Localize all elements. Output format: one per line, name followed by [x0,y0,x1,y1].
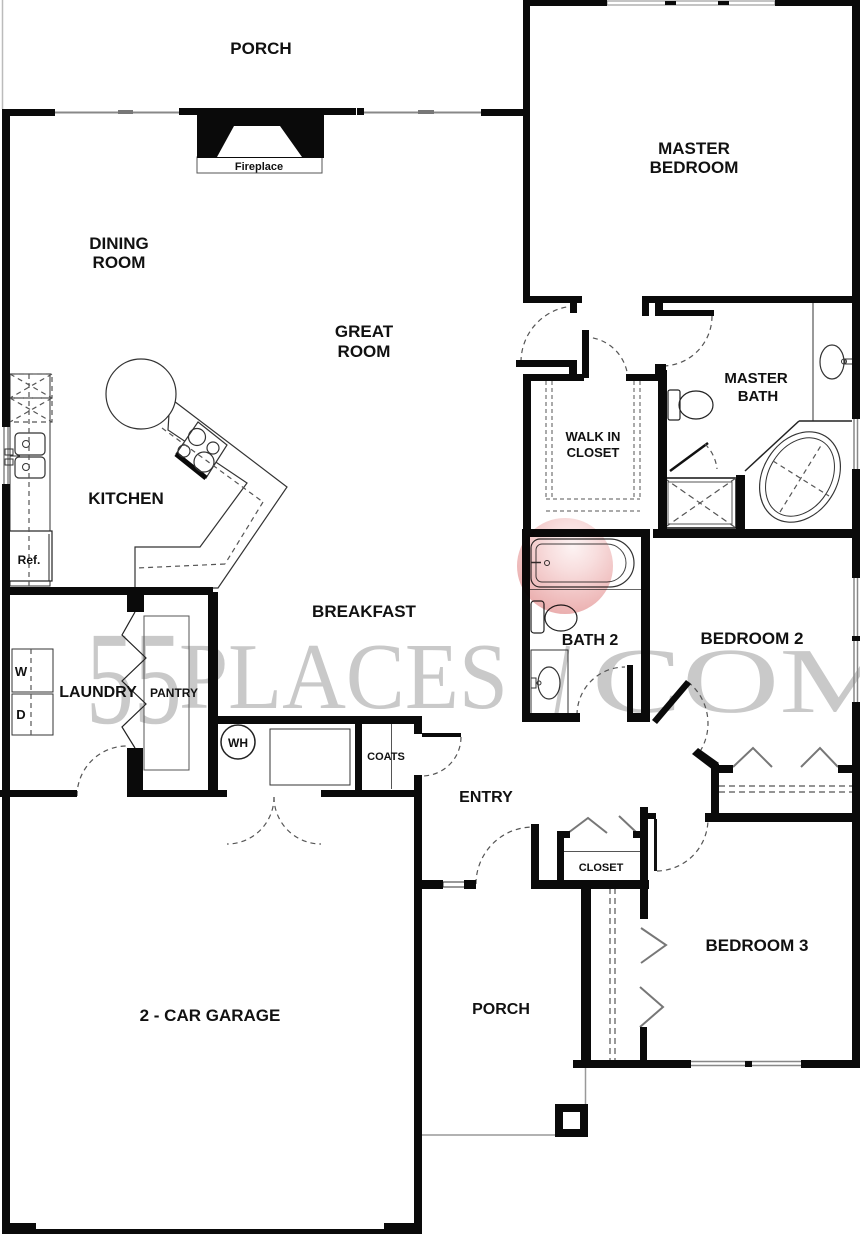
svg-text:ENTRY: ENTRY [459,789,513,806]
svg-text:GREAT: GREAT [335,322,394,341]
svg-text:PANTRY: PANTRY [150,686,198,700]
svg-text:CLOSET: CLOSET [579,862,624,874]
svg-text:COATS: COATS [367,751,405,763]
svg-text:55: 55 [86,606,182,753]
svg-text:D: D [16,707,25,722]
svg-text:DINING: DINING [89,234,149,253]
svg-text:BATH: BATH [738,388,779,405]
svg-text:KITCHEN: KITCHEN [88,489,164,508]
svg-text:W: W [15,664,28,679]
svg-text:PLACES: PLACES [179,625,508,729]
svg-text:LAUNDRY: LAUNDRY [59,684,137,701]
svg-text:ROOM: ROOM [93,253,146,272]
svg-text:MASTER: MASTER [724,370,788,387]
svg-text:CLOSET: CLOSET [567,445,620,460]
svg-text:BEDROOM: BEDROOM [650,158,739,177]
svg-text:BEDROOM 3: BEDROOM 3 [706,936,809,955]
svg-text:WH: WH [228,736,248,750]
svg-text:MASTER: MASTER [658,139,730,158]
svg-text:BEDROOM 2: BEDROOM 2 [701,629,804,648]
svg-text:BREAKFAST: BREAKFAST [312,602,417,621]
svg-text:2 - CAR GARAGE: 2 - CAR GARAGE [140,1006,281,1025]
svg-text:PORCH: PORCH [230,39,291,58]
svg-text:PORCH: PORCH [472,1001,530,1018]
svg-text:ROOM: ROOM [338,342,391,361]
svg-text:Ref.: Ref. [18,553,41,567]
svg-text:Fireplace: Fireplace [235,161,283,173]
svg-text:WALK IN: WALK IN [566,429,621,444]
svg-text:BATH 2: BATH 2 [562,632,619,649]
